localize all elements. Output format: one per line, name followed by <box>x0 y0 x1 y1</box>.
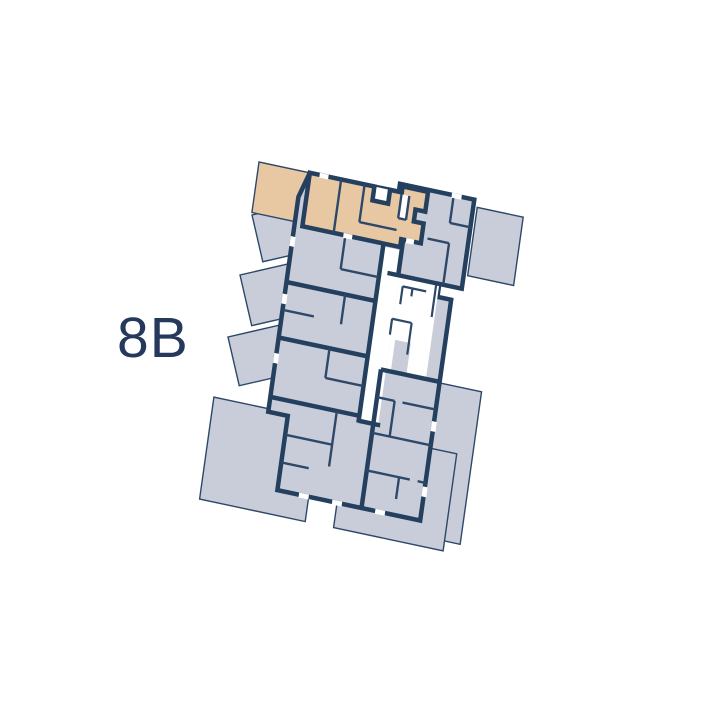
unit-label: 8B <box>117 306 189 370</box>
floor-plan-page: 8B <box>0 0 720 720</box>
floor-plan: 8B <box>0 0 720 720</box>
right-balcony <box>468 207 524 285</box>
